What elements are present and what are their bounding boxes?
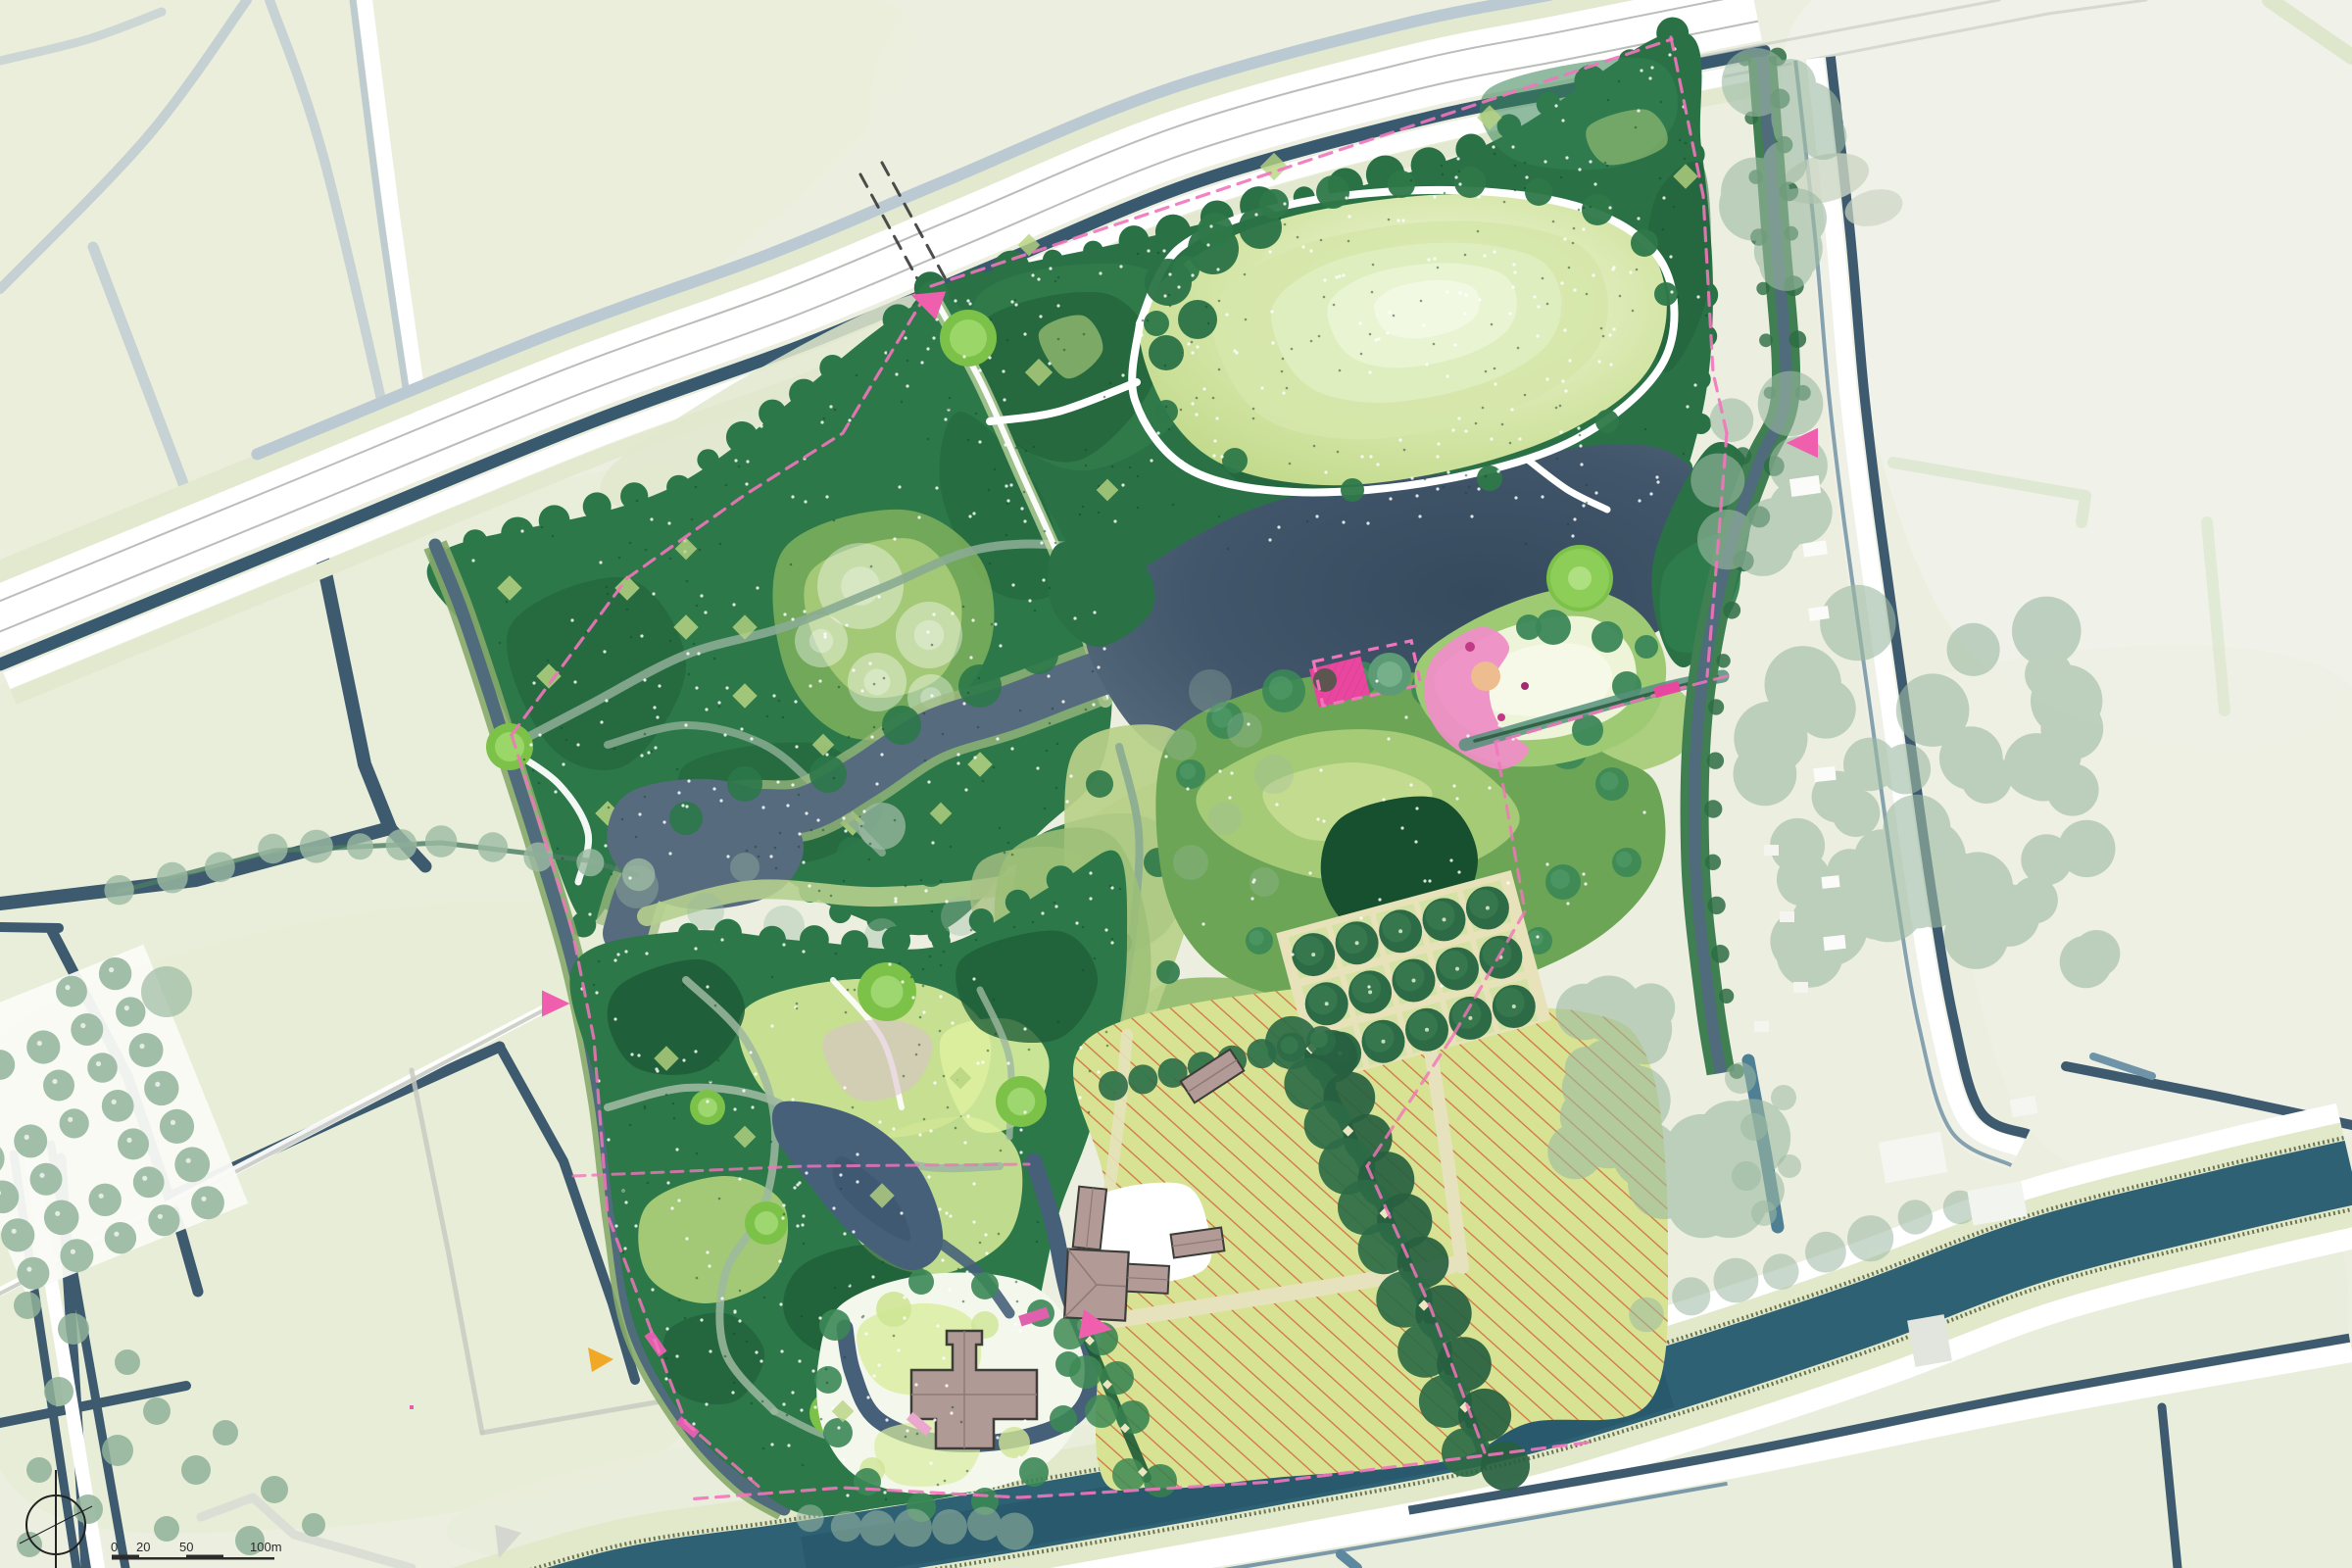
- svg-text:50: 50: [179, 1540, 193, 1554]
- svg-text:20: 20: [136, 1540, 150, 1554]
- svg-text:0: 0: [111, 1540, 118, 1554]
- svg-text:100m: 100m: [250, 1540, 282, 1554]
